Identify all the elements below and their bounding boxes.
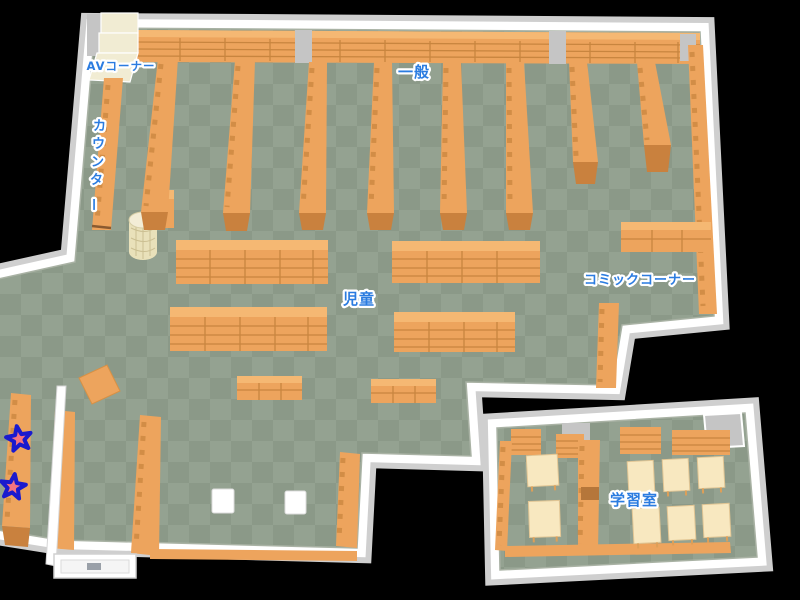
study-desk-r5 bbox=[667, 505, 696, 545]
white-kiosk-2 bbox=[285, 491, 306, 514]
bottom-wall-low-shelf bbox=[150, 549, 357, 561]
kids-shelf-row-2b bbox=[394, 312, 515, 352]
study-shelf-top-3 bbox=[620, 427, 661, 454]
kids-shelf-row-1b bbox=[392, 241, 540, 283]
label-av-corner: AVコーナー bbox=[86, 59, 155, 73]
study-desk-r3 bbox=[697, 456, 725, 493]
kids-shelf-row-2a bbox=[170, 307, 327, 351]
label-children: 児童 bbox=[342, 290, 375, 308]
study-desk-r6 bbox=[702, 503, 731, 542]
wall-bookshelf-row-top bbox=[135, 30, 700, 64]
wall-pillar-gap-1 bbox=[295, 30, 312, 63]
study-desk-l1 bbox=[526, 454, 559, 492]
study-shelf-top-4 bbox=[672, 430, 730, 455]
label-comic-corner: コミックコーナー bbox=[584, 273, 696, 288]
label-study-room: 学習室 bbox=[610, 491, 658, 509]
study-desk-l2 bbox=[528, 500, 560, 542]
library-floor-map: AVコーナー カウンター 一般 児童 コミックコーナー 学習室 bbox=[0, 0, 800, 600]
study-desk-r2 bbox=[662, 458, 690, 496]
bookshelf-column-b4 bbox=[336, 452, 360, 548]
kids-shelf-low-3b bbox=[371, 379, 436, 403]
comic-corner-shelf-top bbox=[621, 222, 711, 252]
kids-shelf-low-3a bbox=[237, 376, 302, 400]
door-handle bbox=[87, 563, 101, 570]
white-kiosk-1 bbox=[212, 489, 234, 513]
study-desk-r4 bbox=[632, 507, 661, 548]
study-shelf-top-1 bbox=[511, 429, 541, 455]
kids-shelf-row-1a bbox=[176, 240, 328, 284]
comic-corner-shelf-side bbox=[596, 303, 619, 388]
wall-pillar-gap-2 bbox=[549, 31, 566, 64]
study-divider-shelf bbox=[578, 440, 600, 550]
entrance-door[interactable] bbox=[54, 554, 136, 578]
label-general: 一般 bbox=[398, 63, 430, 81]
